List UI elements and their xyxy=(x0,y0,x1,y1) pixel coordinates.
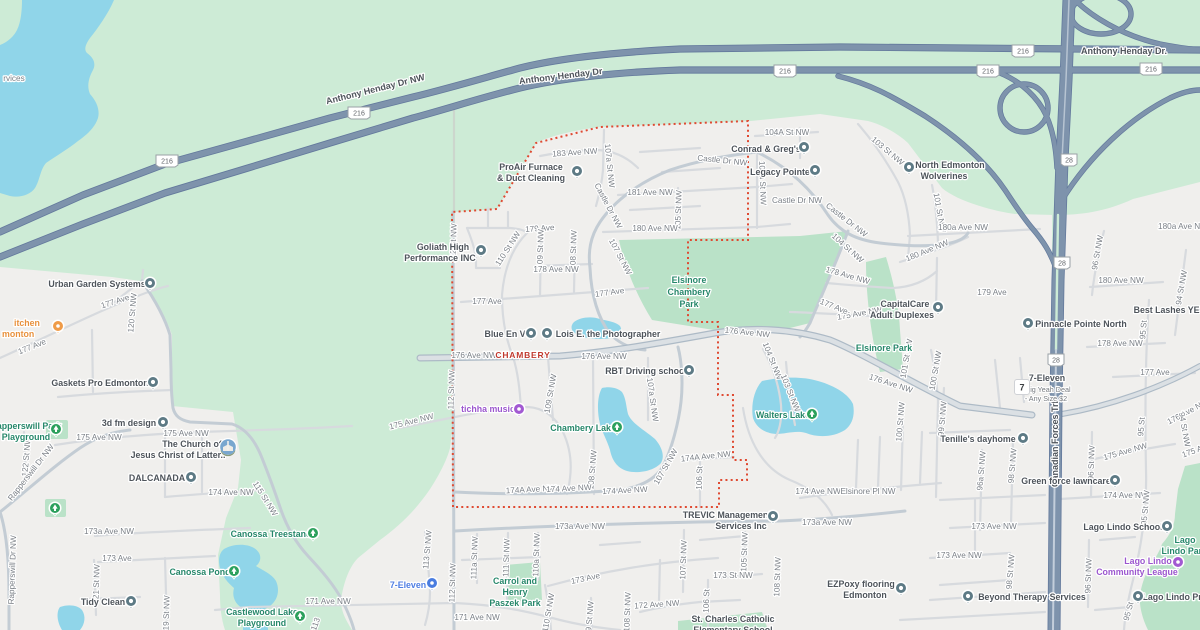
svg-text:Blue En V: Blue En V xyxy=(484,329,525,339)
svg-text:216: 216 xyxy=(353,111,365,118)
svg-text:Paszek Park: Paszek Park xyxy=(489,598,540,608)
svg-text:Services Inc: Services Inc xyxy=(715,521,766,531)
svg-text:Castlewood Lake: Castlewood Lake xyxy=(226,607,298,617)
svg-text:Community League: Community League xyxy=(1096,567,1178,577)
svg-text:7-Eleven: 7-Eleven xyxy=(390,580,426,590)
svg-text:Lois E. the Photographer: Lois E. the Photographer xyxy=(556,329,661,339)
svg-text:Canossa Treestand: Canossa Treestand xyxy=(231,529,312,539)
svg-text:108 St NW: 108 St NW xyxy=(568,230,578,270)
svg-text:180 Ave NW: 180 Ave NW xyxy=(1098,276,1144,285)
svg-text:St. Charles Catholic: St. Charles Catholic xyxy=(691,614,774,624)
svg-text:Playground: Playground xyxy=(238,618,286,628)
svg-text:Adult Duplexes: Adult Duplexes xyxy=(870,310,934,320)
svg-text:119 St NW: 119 St NW xyxy=(161,595,171,630)
svg-text:216: 216 xyxy=(161,159,173,166)
svg-text:95 St: 95 St xyxy=(1138,319,1149,340)
svg-text:178 Ave NW: 178 Ave NW xyxy=(533,265,579,274)
svg-text:Big Yeah Deal: Big Yeah Deal xyxy=(1025,385,1071,394)
svg-text:28: 28 xyxy=(1058,261,1066,268)
svg-text:Jesus Christ of Latter..: Jesus Christ of Latter.. xyxy=(131,450,226,460)
svg-text:rvices: rvices xyxy=(3,74,24,83)
svg-text:28: 28 xyxy=(1065,158,1073,165)
svg-text:Gaskets Pro Edmonton: Gaskets Pro Edmonton xyxy=(51,378,148,388)
svg-text:96 St NW: 96 St NW xyxy=(1083,558,1093,594)
svg-text:Performance INC: Performance INC xyxy=(404,253,476,263)
svg-text:180a Ave NW: 180a Ave NW xyxy=(1158,222,1200,231)
svg-text:216: 216 xyxy=(1145,67,1157,74)
svg-text:173a Ave NW: 173a Ave NW xyxy=(84,527,134,536)
svg-text:179 Ave: 179 Ave xyxy=(977,288,1007,297)
svg-text:Walters Lake: Walters Lake xyxy=(756,410,810,420)
svg-text:174 Ave NW: 174 Ave NW xyxy=(208,488,254,497)
svg-text:7-Eleven: 7-Eleven xyxy=(1029,373,1065,383)
svg-text:175 Ave NW: 175 Ave NW xyxy=(163,429,209,438)
svg-text:Chambery: Chambery xyxy=(667,287,710,297)
svg-text:Lindo Par..: Lindo Par.. xyxy=(1162,546,1200,556)
svg-text:106 St: 106 St xyxy=(702,588,712,613)
svg-text:monton: monton xyxy=(2,329,34,339)
svg-text:The Church of: The Church of xyxy=(162,439,222,449)
svg-text:109 St NW: 109 St NW xyxy=(535,229,545,269)
svg-text:itchen: itchen xyxy=(14,318,40,328)
svg-text:216: 216 xyxy=(779,69,791,76)
svg-text:Elsinore: Elsinore xyxy=(672,275,707,285)
svg-text:107 St NW: 107 St NW xyxy=(678,540,688,580)
svg-text:216: 216 xyxy=(982,69,994,76)
svg-text:181 Ave NW: 181 Ave NW xyxy=(627,188,673,197)
svg-text:7: 7 xyxy=(1019,382,1024,392)
svg-text:Elsinore Park: Elsinore Park xyxy=(856,343,912,353)
svg-text:171 Ave NW: 171 Ave NW xyxy=(305,597,351,606)
svg-text:216: 216 xyxy=(1017,49,1029,56)
svg-text:28: 28 xyxy=(1052,358,1060,365)
svg-text:Best Lashes YEG: Best Lashes YEG xyxy=(1134,305,1200,315)
svg-text:104A St NW: 104A St NW xyxy=(765,128,810,137)
svg-text:ProAir Furnace: ProAir Furnace xyxy=(499,162,563,172)
svg-text:173 Ave: 173 Ave xyxy=(102,554,132,563)
svg-text:176 Ave NW: 176 Ave NW xyxy=(581,352,627,361)
svg-text:Green force lawncare: Green force lawncare xyxy=(1021,476,1111,486)
svg-text:Tidy Clean: Tidy Clean xyxy=(81,597,125,607)
svg-text:DALCANADA: DALCANADA xyxy=(129,473,186,483)
svg-text:tichha music: tichha music xyxy=(461,404,515,414)
svg-text:CHAMBERY: CHAMBERY xyxy=(495,350,550,360)
svg-text:Edmonton: Edmonton xyxy=(843,590,887,600)
svg-text:Elementary School: Elementary School xyxy=(693,625,772,630)
svg-text:110a St NW: 110a St NW xyxy=(531,533,542,577)
svg-text:112 St NW: 112 St NW xyxy=(446,370,456,410)
svg-text:180 Ave NW: 180 Ave NW xyxy=(632,224,678,233)
svg-text:108 St NW: 108 St NW xyxy=(622,592,632,630)
svg-text:Tenille's dayhome: Tenille's dayhome xyxy=(940,434,1015,444)
svg-text:173 Ave NW: 173 Ave NW xyxy=(936,551,982,560)
svg-text:176 Ave NW: 176 Ave NW xyxy=(451,351,497,360)
svg-text:177 Ave: 177 Ave xyxy=(1140,368,1170,377)
svg-text:Carrol and: Carrol and xyxy=(493,576,537,586)
svg-text:Castle Dr NW: Castle Dr NW xyxy=(772,196,822,205)
svg-text:Conrad & Greg's: Conrad & Greg's xyxy=(731,144,801,154)
svg-text:105 St NW: 105 St NW xyxy=(739,532,749,572)
svg-text:Henry: Henry xyxy=(503,587,528,597)
svg-text:Goliath High: Goliath High xyxy=(417,242,469,252)
svg-text:171 Ave NW: 171 Ave NW xyxy=(454,613,500,622)
svg-text:111 St NW: 111 St NW xyxy=(501,538,511,577)
svg-text:Pinnacle Pointe North: Pinnacle Pointe North xyxy=(1035,319,1126,329)
svg-text:Urban Garden Systems: Urban Garden Systems xyxy=(48,279,145,289)
svg-text:Lago Lindo School: Lago Lindo School xyxy=(1083,522,1162,532)
svg-text:Lago Lindo Pre..: Lago Lindo Pre.. xyxy=(1143,592,1200,602)
svg-text:RBT Driving school: RBT Driving school xyxy=(605,366,687,376)
svg-text:Canadian Forces Trl: Canadian Forces Trl xyxy=(1050,401,1060,487)
svg-text:CapitalCare: CapitalCare xyxy=(881,299,930,309)
svg-text:106 St: 106 St xyxy=(695,465,705,490)
svg-text:173 Ave NW: 173 Ave NW xyxy=(971,522,1017,531)
svg-text:95 St: 95 St xyxy=(1136,416,1147,437)
svg-text:177 Ave: 177 Ave xyxy=(472,297,502,306)
svg-text:& Duct Cleaning: & Duct Cleaning xyxy=(497,173,565,183)
svg-text:TREVIC Management: TREVIC Management xyxy=(683,510,772,520)
svg-text:Park: Park xyxy=(679,299,698,309)
svg-text:EZPoxy flooring: EZPoxy flooring xyxy=(827,579,894,589)
svg-text:178 Ave NW: 178 Ave NW xyxy=(1097,339,1143,348)
svg-text:174 Ave NW: 174 Ave NW xyxy=(795,487,841,496)
svg-text:Canossa Pond: Canossa Pond xyxy=(169,567,230,577)
svg-text:180a Ave NW: 180a Ave NW xyxy=(938,223,988,232)
svg-text:Chambery Lake: Chambery Lake xyxy=(550,423,616,433)
svg-text:Wolverines: Wolverines xyxy=(921,171,968,181)
svg-text:173 St NW: 173 St NW xyxy=(713,571,753,580)
svg-text:173a Ave NW: 173a Ave NW xyxy=(555,522,605,531)
svg-text:173a Ave NW: 173a Ave NW xyxy=(802,518,852,527)
svg-text:Elsinore Pl NW: Elsinore Pl NW xyxy=(840,487,895,496)
svg-text:108 St NW: 108 St NW xyxy=(772,557,782,597)
svg-text:Playground: Playground xyxy=(2,432,50,442)
svg-text:- Any Size $2: - Any Size $2 xyxy=(1025,394,1067,403)
svg-text:Beyond Therapy Services: Beyond Therapy Services xyxy=(978,592,1086,602)
svg-text:111a St NW: 111a St NW xyxy=(469,536,480,579)
svg-text:North Edmonton: North Edmonton xyxy=(915,160,984,170)
svg-text:175 Ave NW: 175 Ave NW xyxy=(76,433,122,442)
svg-text:3d fm design: 3d fm design xyxy=(102,418,156,428)
svg-text:Anthony Henday Dr.: Anthony Henday Dr. xyxy=(1081,46,1167,56)
svg-text:Lago: Lago xyxy=(1174,535,1196,545)
svg-text:Legacy Pointe: Legacy Pointe xyxy=(750,167,810,177)
svg-text:112 St NW: 112 St NW xyxy=(447,563,457,603)
svg-text:Lago Lindo: Lago Lindo xyxy=(1124,556,1172,566)
